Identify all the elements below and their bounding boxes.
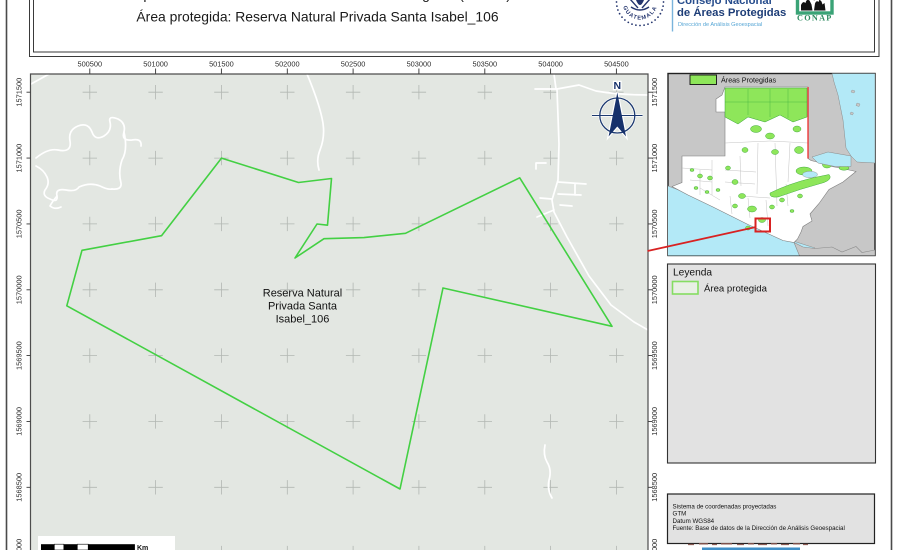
svg-text:CONAP: CONAP [797, 14, 833, 23]
svg-text:502000: 502000 [275, 60, 300, 69]
svg-text:Sistema de coordenadas proyect: Sistema de coordenadas proyectadas [673, 504, 777, 511]
svg-text:Km: Km [137, 545, 148, 550]
svg-text:1571000: 1571000 [15, 144, 24, 173]
svg-text:1568000: 1568000 [15, 539, 24, 550]
svg-text:Fuente: Base de datos de la Di: Fuente: Base de datos de la Dirección de… [673, 525, 845, 532]
svg-text:GTM: GTM [673, 511, 687, 518]
svg-text:Consejo Nacional: Consejo Nacional [677, 0, 772, 7]
svg-text:503000: 503000 [407, 60, 432, 69]
svg-text:de Áreas Protegidas: de Áreas Protegidas [677, 6, 786, 19]
svg-text:1569000: 1569000 [15, 407, 24, 436]
svg-text:1569500: 1569500 [15, 341, 24, 370]
svg-text:503500: 503500 [472, 60, 497, 69]
svg-text:Privada Santa: Privada Santa [268, 301, 338, 313]
svg-text:Dirección de Análisis Geoespac: Dirección de Análisis Geoespacial [678, 22, 762, 28]
svg-text:1570000: 1570000 [15, 275, 24, 304]
svg-text:Mapa del Sistema Guatemalteco: Mapa del Sistema Guatemalteco de Áreas P… [124, 0, 511, 2]
svg-text:501500: 501500 [209, 60, 234, 69]
svg-text:500500: 500500 [77, 60, 102, 69]
svg-text:Área protegida: Área protegida [704, 284, 768, 295]
svg-text:1570500: 1570500 [15, 210, 24, 239]
svg-text:1568000: 1568000 [650, 539, 659, 550]
svg-text:502500: 502500 [341, 60, 366, 69]
svg-text:Datum WGS84: Datum WGS84 [673, 518, 715, 525]
svg-text:501000: 501000 [143, 60, 168, 69]
svg-text:Áreas Protegidas: Áreas Protegidas [721, 75, 777, 84]
svg-text:N: N [614, 80, 622, 92]
svg-text:504500: 504500 [604, 60, 629, 69]
svg-text:Isabel_106: Isabel_106 [276, 314, 330, 326]
svg-text:504000: 504000 [538, 60, 563, 69]
svg-text:1571500: 1571500 [15, 78, 24, 107]
svg-text:Leyenda: Leyenda [673, 268, 712, 279]
svg-text:1568500: 1568500 [15, 473, 24, 502]
svg-text:Área protegida: Reserva Natura: Área protegida: Reserva Natural Privada … [136, 9, 498, 25]
svg-text:Reserva Natural: Reserva Natural [263, 288, 342, 300]
